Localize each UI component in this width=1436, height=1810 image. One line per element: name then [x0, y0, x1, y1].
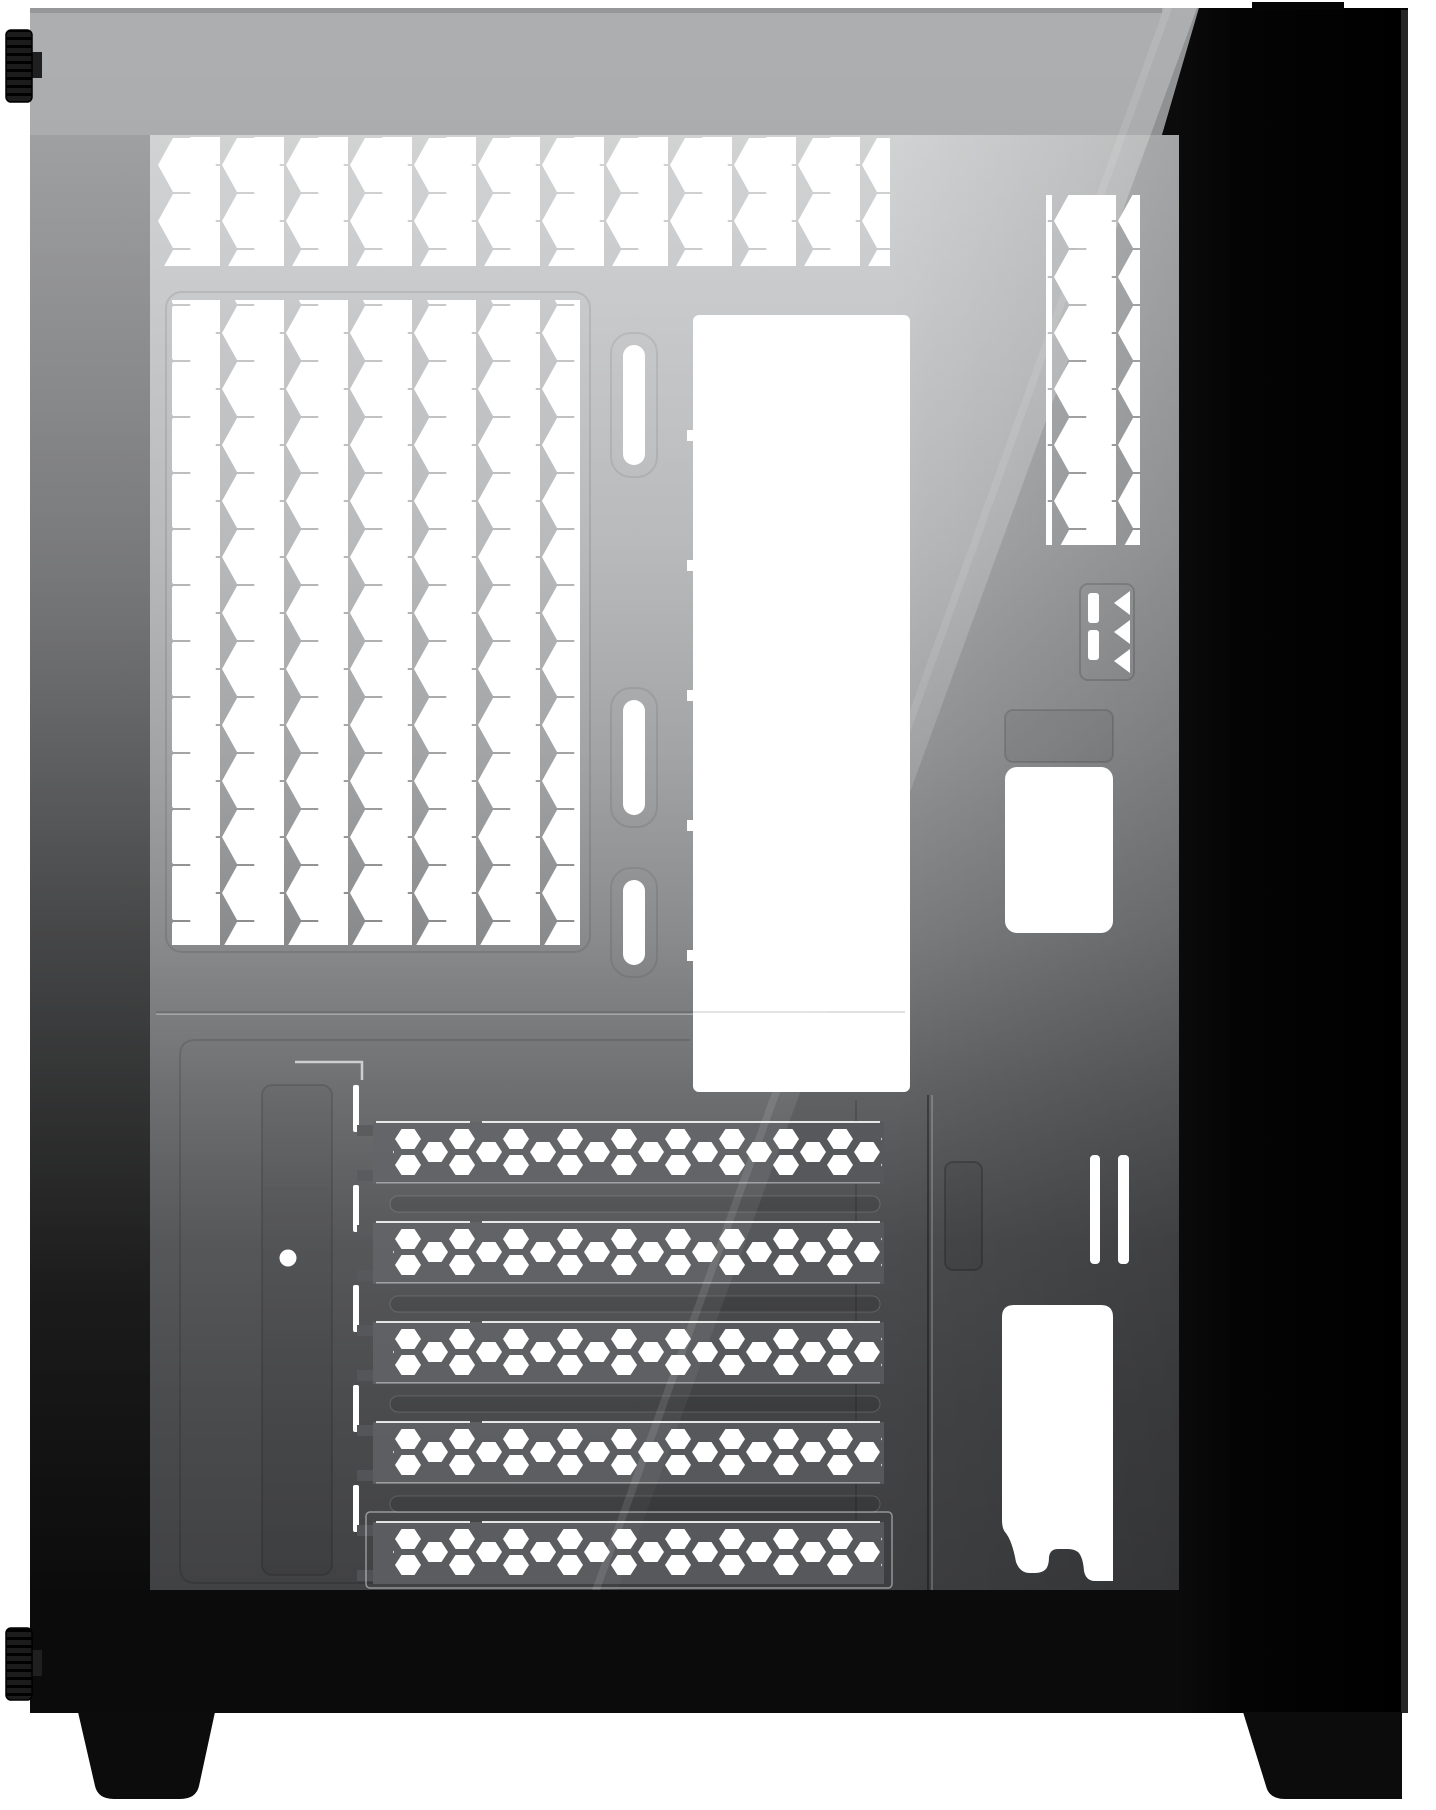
- psu-cutout: [1002, 1305, 1113, 1581]
- case-foot-rear: [78, 1712, 215, 1799]
- case-foot-front: [1243, 1712, 1402, 1799]
- stamped-slot-outline: [945, 1162, 982, 1270]
- drive-tray-cutout: [1005, 767, 1113, 933]
- thumbscrew-top-head: [6, 30, 32, 102]
- tray-flange-light: [931, 1095, 933, 1590]
- tray-flange-dark: [927, 1095, 929, 1590]
- alignment-arrows: [1114, 591, 1130, 673]
- thumbscrew-bottom-head: [6, 1628, 32, 1700]
- product-photo-canvas: Black mid-tower PC case shown from the l…: [0, 0, 1436, 1810]
- front-panel-edge-sliver: [1401, 10, 1408, 1713]
- drive-tray-plateau: [1005, 710, 1113, 762]
- top-panel-tab: [1252, 2, 1344, 10]
